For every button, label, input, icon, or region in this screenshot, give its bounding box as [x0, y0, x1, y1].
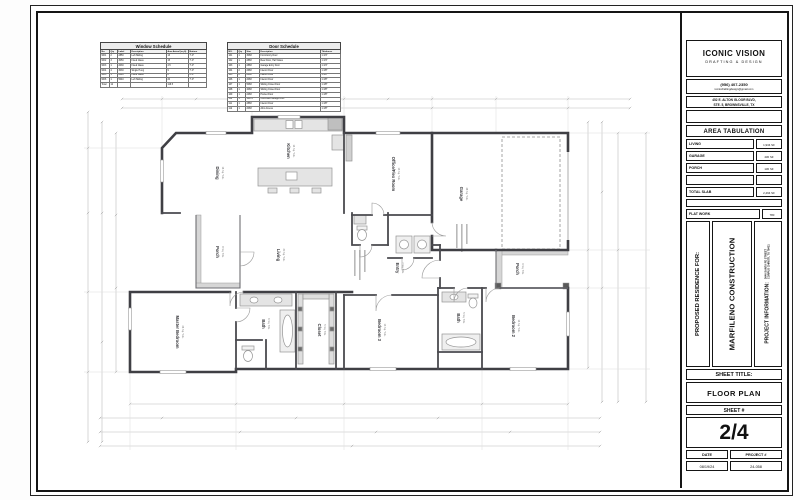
- garage-door: [566, 152, 570, 240]
- sheet-title: FLOOR PLAN: [686, 382, 782, 403]
- client-name-cell: MARFILENO CONSTRUCTION: [712, 221, 752, 367]
- project-number-value: 24-058: [730, 461, 782, 471]
- date-label: DATE: [686, 450, 728, 459]
- svg-text:48 Sq. Yds.: 48 Sq. Yds.: [465, 188, 468, 201]
- company-name: ICONIC VISION: [687, 49, 781, 58]
- extension-lines: [84, 96, 650, 450]
- svg-text:6 Sq. Yds.: 6 Sq. Yds.: [267, 318, 270, 330]
- title-block: ICONIC VISION DRAFTING & DESIGN (956) 40…: [686, 40, 782, 471]
- area-row-total: TOTAL SLAB 2,494 SF: [686, 187, 782, 197]
- svg-text:5 Sq. Yds.: 5 Sq. Yds.: [462, 312, 465, 324]
- company-phone: (956) 407-2350: [687, 82, 781, 87]
- schedule-row: 11212068Attic Access1 3/8": [228, 107, 341, 112]
- company-subtitle: DRAFTING & DESIGN: [687, 60, 781, 64]
- sheet-number: 2/4: [686, 417, 782, 448]
- svg-text:14 Sq. Yds.: 14 Sq. Yds.: [292, 145, 295, 158]
- schedule-row: Total12116.5: [101, 83, 207, 88]
- svg-text:26 Sq. Yds.: 26 Sq. Yds.: [181, 326, 184, 339]
- room-label-living: Living: [276, 249, 281, 262]
- window-schedule-title: Window Schedule: [101, 43, 207, 50]
- sheet-title-label: SHEET TITLE:: [686, 369, 782, 380]
- area-row-living: LIVING 1,934 SF: [686, 139, 782, 149]
- room-labels: Dining 16 Sq. Yds. Kitchen 14 Sq. Yds. O…: [175, 143, 524, 348]
- blank-cell: [686, 110, 782, 123]
- area-tabulation-title: AREA TABULATION: [686, 125, 782, 137]
- window-schedule: Window Schedule No.Qty LabelDescription …: [100, 42, 206, 88]
- company-address-line2: STE. 5, BROWNSVILLE, TX: [687, 103, 781, 108]
- room-label-bedroom-3: Bedroom 3: [377, 319, 382, 342]
- svg-text:16 Sq. Yds.: 16 Sq. Yds.: [221, 167, 224, 180]
- door-schedule: Door Schedule NO.Qty SizeDescription Thi…: [227, 42, 340, 112]
- area-row-porch: PORCH 130 SF: [686, 163, 782, 173]
- room-label-bedroom-2: Bedroom 2: [511, 315, 516, 338]
- room-label-garage: Garage: [459, 187, 464, 202]
- dimension-lines: [88, 99, 646, 446]
- project-number-label: PROJECT #: [730, 450, 782, 459]
- sheet-number-label: SHEET #: [686, 405, 782, 415]
- proposed-for-cell: PROPOSED RESIDENCE FOR:: [686, 221, 710, 367]
- drawing-sheet: { "title_block": { "company": "ICONIC VI…: [0, 0, 800, 500]
- company-email: iconicdraftingdesign@gmail.com: [687, 88, 781, 91]
- svg-text:5 Sq. Yds.: 5 Sq. Yds.: [323, 324, 326, 336]
- company-address-block: 452 E. ALTON GLOOR BLVD, STE. 5, BROWNSV…: [686, 96, 782, 108]
- room-label-office: Office/Flex Room: [391, 157, 396, 192]
- svg-text:9 Sq. Yds.: 9 Sq. Yds.: [521, 263, 524, 275]
- svg-text:13 Sq. Yds.: 13 Sq. Yds.: [397, 168, 400, 181]
- project-info-label: PROJECT INFORMATION:: [765, 282, 771, 344]
- door-schedule-title: Door Schedule: [228, 43, 341, 50]
- project-info-cell: PROJECT INFORMATION: 3646 SANTA FE STREE…: [754, 221, 782, 367]
- room-label-bath-2: Bath: [456, 313, 461, 323]
- room-label-back-porch: Porch: [215, 246, 220, 258]
- date-project-header-row: DATE PROJECT #: [686, 450, 782, 459]
- date-project-value-row: 08/19/24 24-058: [686, 461, 782, 471]
- room-label-master-bath: Bath: [261, 319, 266, 329]
- svg-text:8 Sq. Yds.: 8 Sq. Yds.: [221, 246, 224, 258]
- date-value: 08/19/24: [686, 461, 728, 471]
- blank-cell: [686, 199, 782, 207]
- room-label-closet: Closet: [317, 324, 322, 337]
- fixtures: [240, 117, 480, 364]
- svg-text:7 Sq. Yds.: 7 Sq. Yds.: [401, 262, 404, 274]
- svg-text:30 Sq. Yds.: 30 Sq. Yds.: [282, 249, 285, 262]
- room-label-master-bedroom: Master Bedroom: [175, 315, 180, 348]
- room-label-kitchen: Kitchen: [286, 143, 291, 159]
- company-contact-block: (956) 407-2350 iconicdraftingdesign@gmai…: [686, 79, 782, 94]
- room-label-front-porch: Porch: [515, 263, 520, 275]
- area-row-blank: [686, 175, 782, 185]
- room-label-dining: Dining: [215, 166, 220, 179]
- garage-storage-dashed-outline: [502, 137, 560, 249]
- company-logo-block: ICONIC VISION DRAFTING & DESIGN: [686, 40, 782, 77]
- room-label-entry: Entry: [395, 263, 400, 274]
- area-row-garage: GARAGE 430 SF: [686, 151, 782, 161]
- project-address: 3646 SANTA FE STREET CORPUS CHRISTI, TX …: [765, 244, 772, 279]
- svg-text:14 Sq. Yds.: 14 Sq. Yds.: [517, 320, 520, 333]
- svg-text:13 Sq. Yds.: 13 Sq. Yds.: [383, 324, 386, 337]
- project-info-section: PROPOSED RESIDENCE FOR: MARFILENO CONSTR…: [686, 221, 782, 367]
- area-row-flatwork: FLAT WORK 780: [686, 209, 782, 219]
